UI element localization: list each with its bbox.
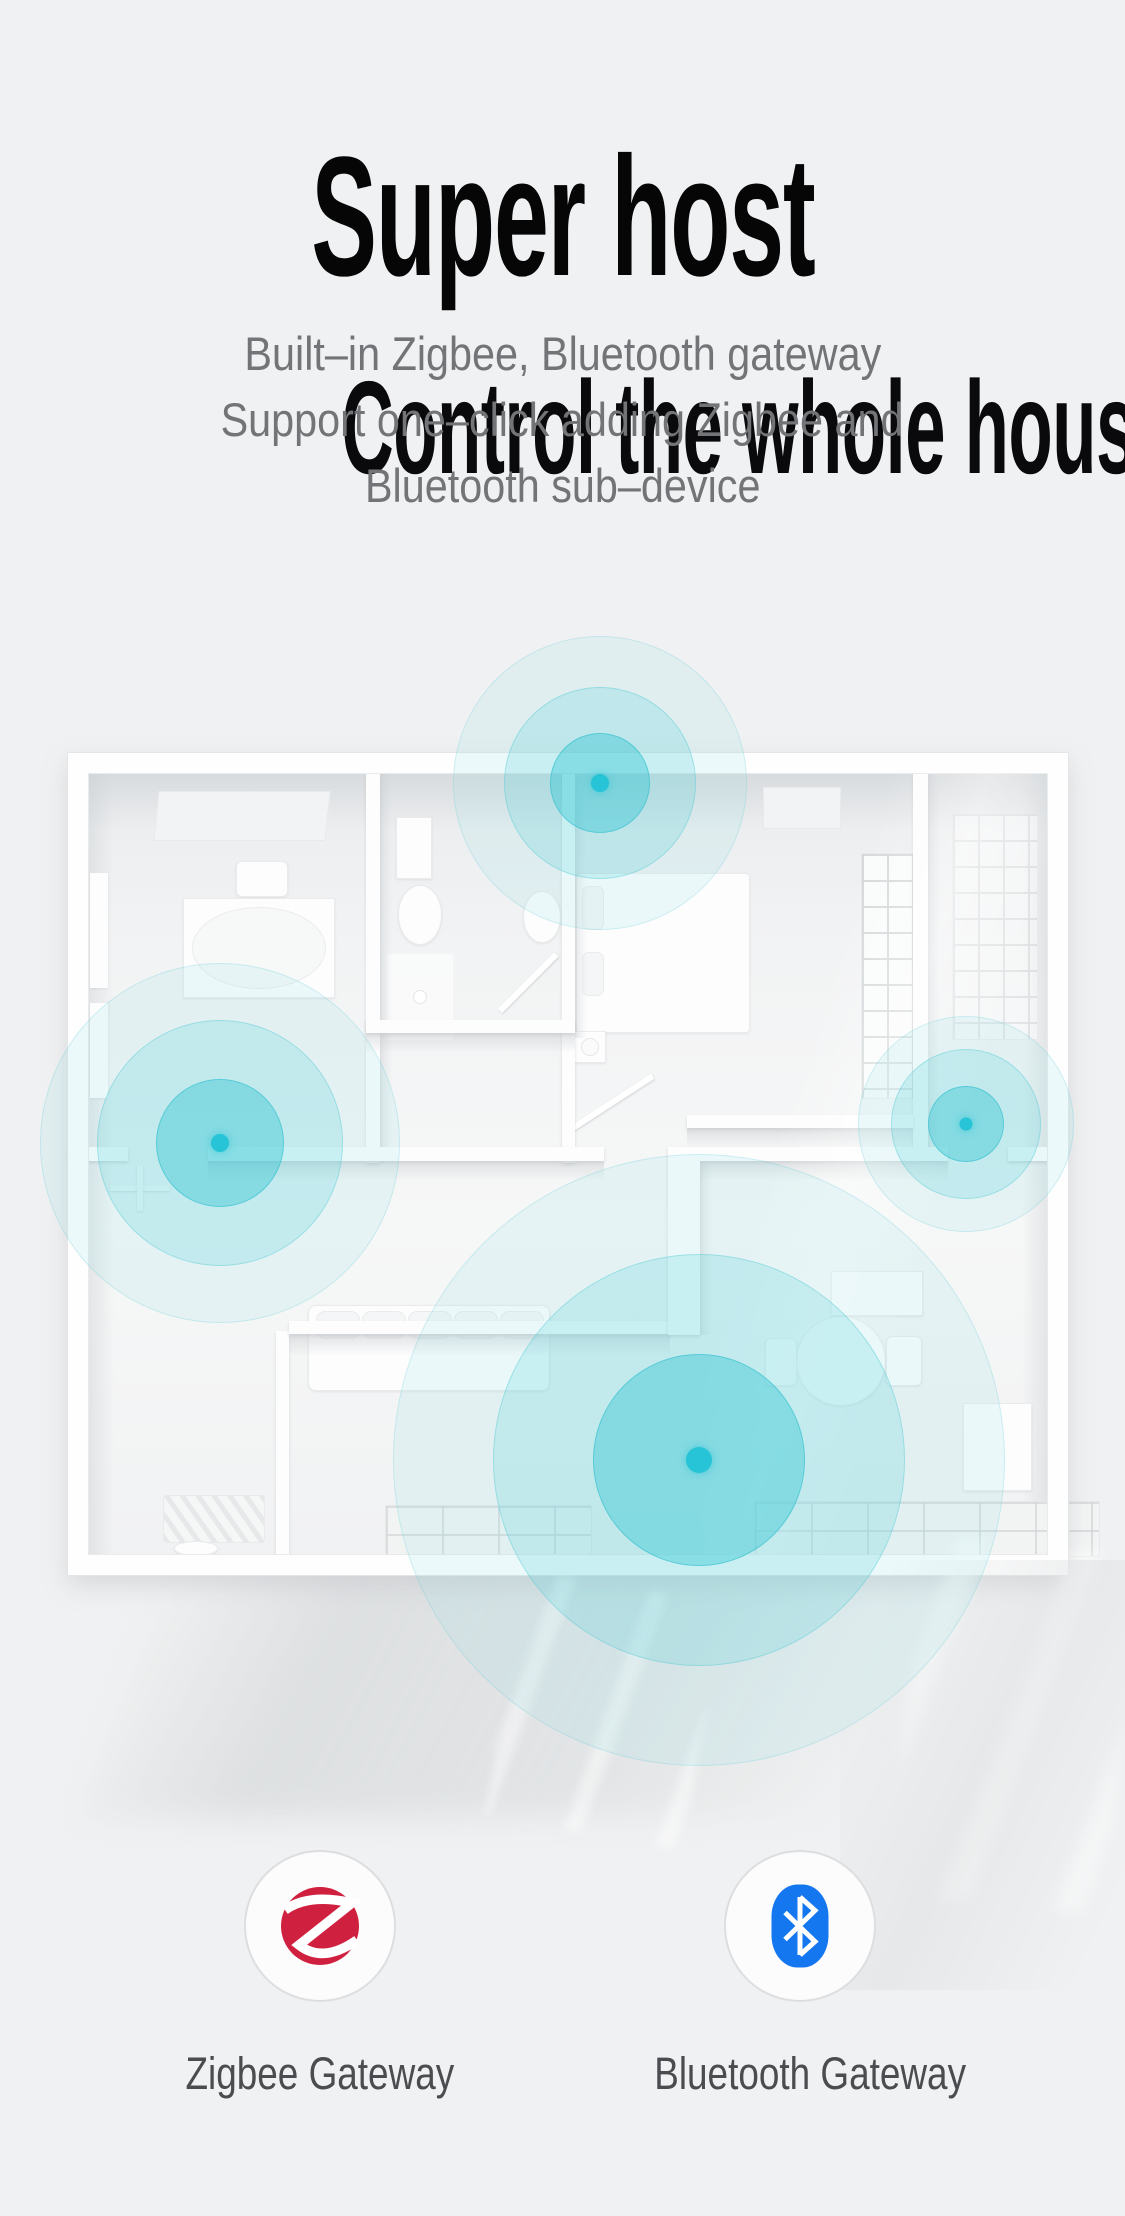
gateway-label: Zigbee Gateway: [140, 2044, 500, 2104]
gateway-zigbee: Zigbee Gateway: [140, 1850, 500, 2104]
page-title-text: Super host: [311, 117, 814, 317]
description-line: Built–in Zigbee, Bluetooth gateway: [0, 321, 1125, 387]
wall-face: [208, 1161, 604, 1181]
wall-face: [88, 773, 114, 1555]
house-outer-wall: [68, 753, 1068, 1575]
wall-face: [289, 1334, 670, 1356]
wall: [562, 773, 575, 1163]
signal-dot: [686, 1447, 712, 1473]
description-line: Bluetooth sub–device: [0, 453, 1125, 519]
signal-ring-middle: [891, 1049, 1041, 1199]
wall: [68, 1147, 128, 1161]
door-leaf: [571, 1074, 654, 1131]
door-leaf: [498, 952, 559, 1013]
sofa-cushion: [408, 1311, 452, 1339]
sofa-cushion: [362, 1311, 406, 1339]
wall: [668, 1147, 948, 1161]
bathtub: [183, 898, 335, 998]
zigbee-badge: [244, 1850, 396, 2002]
wall-face: [687, 1128, 913, 1148]
signal-dot: [591, 774, 609, 792]
signal-ring-outer: [453, 636, 747, 930]
wall: [668, 1161, 700, 1335]
ceiling-vent: [153, 791, 330, 841]
bluetooth-gateway-label-text: Bluetooth Gateway: [654, 2044, 966, 2104]
shower-enclosure: [384, 951, 456, 1043]
window: [90, 1003, 108, 1098]
light-streaks: [485, 1570, 725, 1851]
house-floor: [88, 773, 1048, 1555]
drying-rack: [137, 1165, 143, 1211]
bathtub-basin: [192, 907, 326, 989]
dining-table: [796, 1316, 886, 1406]
signal-ring-outer: [393, 1154, 1005, 1766]
bluetooth-badge: [724, 1850, 876, 2002]
signal-ring-inner: [593, 1354, 805, 1566]
dining-chair: [765, 1338, 797, 1386]
pillow: [582, 952, 604, 996]
toilet: [398, 885, 442, 945]
floor-shadow: [79, 1568, 1040, 1818]
signal-ring-middle: [504, 687, 696, 879]
wall-face: [366, 1033, 575, 1053]
feature-description: Built–in Zigbee, Bluetooth gateway Suppo…: [0, 321, 1125, 519]
dining-chair: [886, 1336, 922, 1386]
signal-ring-middle: [493, 1254, 905, 1666]
smart-device: [574, 1031, 606, 1063]
bidet: [523, 891, 561, 943]
kitchen-tiles: [754, 1501, 1100, 1557]
house-floorplan: [68, 753, 1068, 1575]
sofa-cushion: [500, 1311, 544, 1339]
page-title: Super host: [0, 117, 1125, 317]
wall-face: [928, 773, 940, 1147]
gateway-label: Bluetooth Gateway: [620, 2044, 980, 2104]
signal-ring-inner: [928, 1086, 1004, 1162]
signal-ring-inner: [550, 733, 650, 833]
sofa-cushion: [316, 1311, 360, 1339]
description-line-1: Built–in Zigbee, Bluetooth gateway: [244, 321, 881, 387]
signal-ring-middle: [97, 1020, 343, 1266]
description-line: Support one–click adding Zigbee and: [0, 387, 1125, 453]
description-line-2: Support one–click adding Zigbee and: [221, 387, 904, 453]
pillow: [582, 886, 604, 930]
shower-head: [413, 990, 427, 1004]
bathroom-cabinet: [396, 817, 432, 879]
signal-dot: [211, 1134, 229, 1152]
toilet: [236, 861, 288, 897]
zigbee-z-icon: [277, 1883, 363, 1969]
bed: [576, 873, 750, 1033]
console-table: [831, 1271, 923, 1316]
wall: [913, 773, 928, 1147]
wall: [289, 1321, 670, 1334]
wall: [687, 1115, 913, 1128]
bluetooth-icon: [770, 1883, 830, 1969]
living-room-rug: [385, 1505, 592, 1555]
wall: [208, 1147, 604, 1161]
signal-ring-outer: [858, 1016, 1074, 1232]
description-line-3: Bluetooth sub–device: [365, 453, 761, 519]
gateway-bluetooth: Bluetooth Gateway: [620, 1850, 980, 2104]
wall: [1008, 1147, 1048, 1161]
wall: [276, 1331, 289, 1555]
signal-ring-inner: [156, 1079, 284, 1207]
sofa-cushion: [454, 1311, 498, 1339]
wall: [366, 773, 380, 1163]
drying-rack: [110, 1185, 170, 1191]
sofa: [308, 1305, 550, 1391]
wall-face: [668, 1161, 948, 1181]
wall-face: [575, 773, 587, 1038]
wall-face: [700, 1161, 712, 1335]
signal-ring-outer: [40, 963, 400, 1323]
wall: [366, 1020, 575, 1033]
signal-dot: [960, 1118, 973, 1131]
wardrobe-shelf: [861, 853, 915, 1099]
wall-face: [1022, 773, 1048, 1555]
wall-face: [88, 773, 1048, 831]
slipper: [174, 1541, 218, 1556]
wall-face: [380, 773, 392, 1163]
zigbee-gateway-label-text: Zigbee Gateway: [186, 2044, 455, 2104]
sunbeam: [700, 763, 1050, 1563]
ceiling-light: [763, 787, 841, 829]
closet-window-grid: [952, 813, 1038, 1040]
doormat: [163, 1495, 265, 1543]
window: [90, 873, 108, 988]
kitchen-counter: [963, 1403, 1032, 1491]
smart-device-top: [581, 1038, 599, 1056]
